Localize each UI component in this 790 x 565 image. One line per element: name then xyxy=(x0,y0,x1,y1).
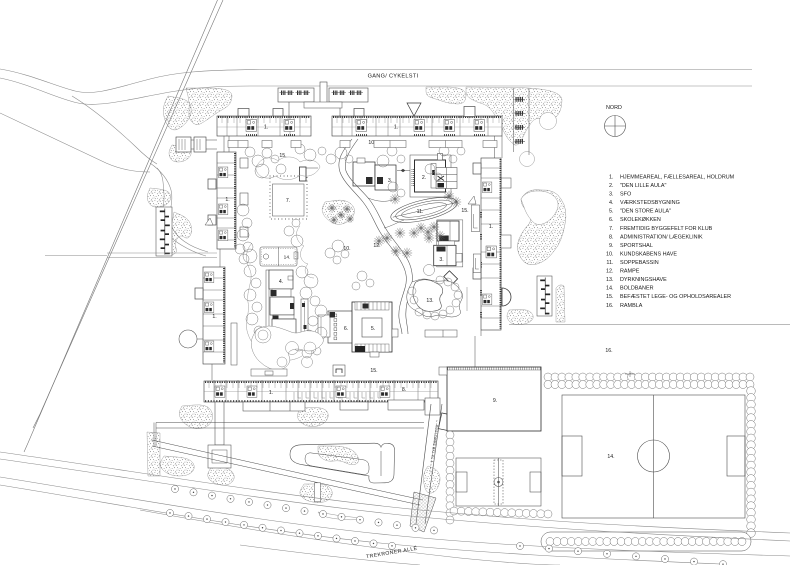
svg-text:4.: 4. xyxy=(609,200,614,206)
svg-text:FREMTIDIG BYGGEFELT FOR KLUB: FREMTIDIG BYGGEFELT FOR KLUB xyxy=(620,226,713,232)
svg-text:1.: 1. xyxy=(489,224,493,230)
svg-text:BOLDBANER: BOLDBANER xyxy=(620,286,654,292)
svg-text:13.: 13. xyxy=(426,298,433,304)
svg-text:15.: 15. xyxy=(606,294,614,300)
svg-text:8.: 8. xyxy=(609,234,614,240)
svg-text:12.: 12. xyxy=(373,243,380,249)
svg-text:3.: 3. xyxy=(439,257,443,263)
svg-text:ADMINISTRATION/ LÆGEKLINIK: ADMINISTRATION/ LÆGEKLINIK xyxy=(620,234,703,240)
svg-text:NORD: NORD xyxy=(606,105,622,111)
svg-text:6.: 6. xyxy=(609,217,614,223)
svg-text:15.: 15. xyxy=(279,153,286,159)
svg-text:5.: 5. xyxy=(371,326,375,332)
svg-text:3.: 3. xyxy=(609,192,614,198)
svg-text:RAMBLA: RAMBLA xyxy=(620,303,643,309)
svg-text:1.: 1. xyxy=(264,125,268,131)
svg-text:16.: 16. xyxy=(605,348,612,354)
svg-text:7.: 7. xyxy=(286,198,290,204)
svg-text:15.: 15. xyxy=(370,368,377,374)
svg-text:2.: 2. xyxy=(422,175,426,181)
svg-text:7.: 7. xyxy=(609,226,614,232)
svg-text:14.: 14. xyxy=(284,255,291,261)
svg-text:1.: 1. xyxy=(394,125,398,131)
svg-text:RAMPE: RAMPE xyxy=(620,269,640,275)
svg-text:SKOLEKØKKEN: SKOLEKØKKEN xyxy=(620,217,661,223)
svg-text:1.: 1. xyxy=(269,390,273,396)
svg-text:11.: 11. xyxy=(417,209,424,215)
svg-text:"DEN STORE AULA": "DEN STORE AULA" xyxy=(620,209,671,215)
svg-text:KUNDSKABENS HAVE: KUNDSKABENS HAVE xyxy=(620,251,677,257)
svg-text:2.: 2. xyxy=(609,183,614,189)
svg-text:5.: 5. xyxy=(609,209,614,215)
svg-text:4.: 4. xyxy=(279,279,283,285)
svg-text:11.: 11. xyxy=(606,260,614,266)
svg-text:1.: 1. xyxy=(212,314,216,320)
svg-text:DYRKNINGSHAVE: DYRKNINGSHAVE xyxy=(620,277,667,283)
svg-text:SPORTSHAL: SPORTSHAL xyxy=(620,243,653,249)
svg-text:14.: 14. xyxy=(606,286,614,292)
svg-text:1.: 1. xyxy=(609,175,614,181)
svg-text:HJEMMEAREAL, FÆLLESAREAL, HOLD: HJEMMEAREAL, FÆLLESAREAL, HOLDRUM xyxy=(620,175,735,181)
svg-text:6.: 6. xyxy=(344,326,348,332)
svg-text:GANG/ CYKELSTI: GANG/ CYKELSTI xyxy=(368,74,419,80)
svg-text:10.: 10. xyxy=(343,246,350,252)
svg-text:VÆRKSTEDSBYGNING: VÆRKSTEDSBYGNING xyxy=(620,200,680,206)
svg-text:SOPPEBASSIN: SOPPEBASSIN xyxy=(620,260,659,266)
svg-text:8.: 8. xyxy=(402,387,406,393)
svg-text:"DEN LILLE AULA": "DEN LILLE AULA" xyxy=(620,183,667,189)
svg-text:15.: 15. xyxy=(461,208,468,214)
svg-text:SFO: SFO xyxy=(620,192,631,198)
svg-text:10.: 10. xyxy=(606,251,614,257)
svg-text:BEFÆSTET LEGE- OG OPHOLDSAREAL: BEFÆSTET LEGE- OG OPHOLDSAREALER xyxy=(620,294,731,300)
svg-text:13.: 13. xyxy=(606,277,614,283)
svg-text:16.: 16. xyxy=(606,303,614,309)
svg-text:1.: 1. xyxy=(225,197,229,203)
svg-text:9.: 9. xyxy=(493,398,497,404)
svg-text:9.: 9. xyxy=(609,243,614,249)
svg-text:14.: 14. xyxy=(607,454,614,460)
svg-text:12.: 12. xyxy=(606,269,614,275)
